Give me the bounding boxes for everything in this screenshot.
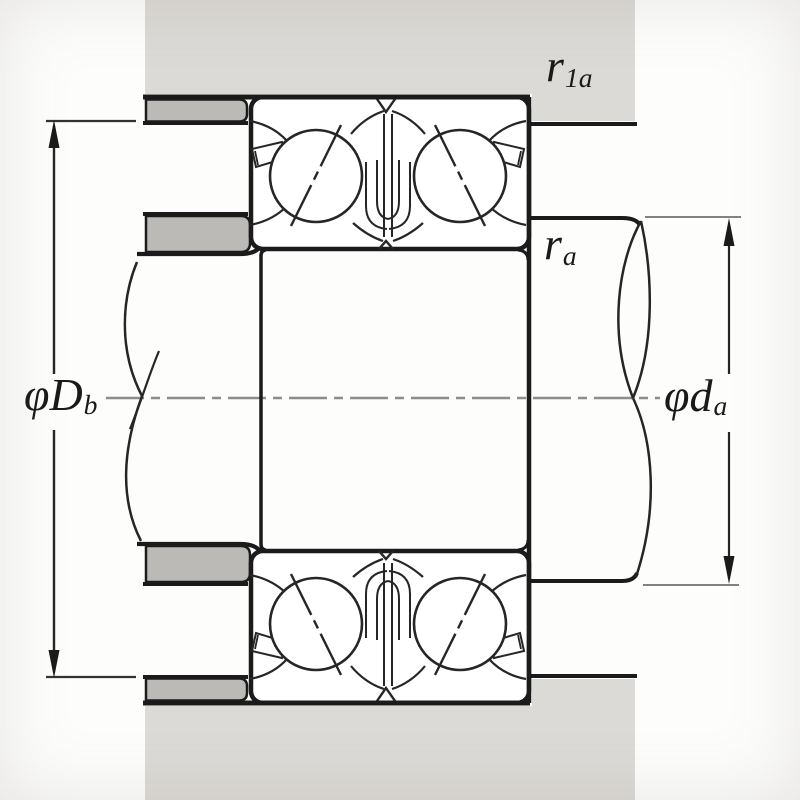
shaft-break-right bbox=[618, 221, 641, 398]
bearing-mounting-diagram: r1a ra φDb φda bbox=[0, 0, 800, 800]
bearing-bore-opening bbox=[261, 250, 528, 550]
label-housing-fillet-r1a: r1a bbox=[546, 42, 593, 93]
shaft-break-right bbox=[633, 221, 650, 398]
shaft-break-left-cross bbox=[130, 351, 159, 429]
bearing-row-top bbox=[250, 97, 529, 249]
arrowhead-down bbox=[724, 556, 735, 584]
label-shaft-abutment-diameter-da: φda bbox=[664, 372, 727, 421]
label-shaft-fillet-ra: ra bbox=[544, 220, 577, 271]
spacer-rings bbox=[146, 100, 250, 701]
arrowhead-up bbox=[49, 120, 60, 148]
shaft-break-right bbox=[633, 398, 651, 577]
shaft-spacer-top bbox=[146, 216, 250, 252]
bore-left-edge bbox=[261, 250, 266, 550]
shaft-spacer-bottom bbox=[146, 546, 250, 582]
bearing-row-bottom bbox=[250, 551, 529, 703]
bore-corner bbox=[518, 540, 528, 550]
bore-corner bbox=[518, 250, 528, 260]
arrowhead-down bbox=[49, 650, 60, 678]
housing-spacer-bottom bbox=[146, 679, 247, 701]
housing-spacer-top bbox=[146, 100, 247, 122]
label-housing-shoulder-diameter-Db: φDb bbox=[24, 371, 97, 420]
arrowhead-up bbox=[724, 218, 735, 246]
shaft-shoulder-bottom bbox=[529, 573, 637, 581]
